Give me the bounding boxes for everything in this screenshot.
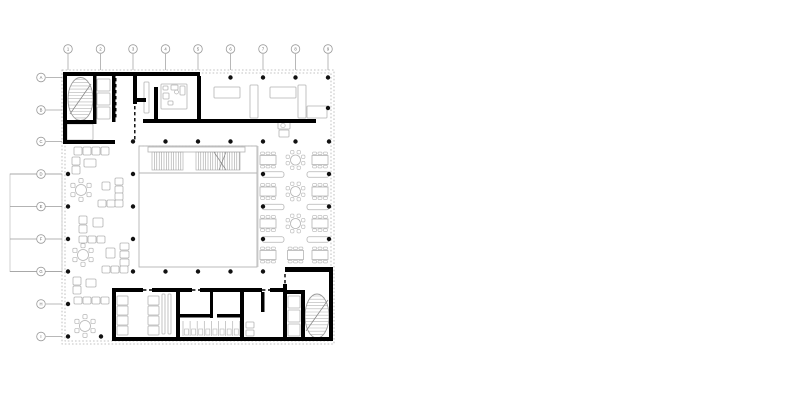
chair: [323, 165, 327, 168]
sofa-seat: [88, 236, 96, 243]
structural-column: [326, 106, 330, 110]
structural-column: [261, 204, 265, 208]
chair: [323, 184, 327, 187]
structural-column: [326, 75, 330, 79]
chair: [323, 247, 327, 250]
dining-table: [312, 187, 328, 196]
fixture-rect: [288, 296, 300, 308]
chair: [297, 214, 300, 217]
chair: [297, 151, 300, 154]
structural-column: [196, 139, 200, 143]
chair: [71, 183, 75, 187]
structural-column: [66, 204, 70, 208]
dining-table: [260, 156, 276, 165]
chair: [323, 197, 327, 200]
fixture-rect: [250, 85, 258, 118]
sofa-seat: [101, 147, 109, 155]
wall-segment: [210, 292, 213, 318]
chair: [271, 165, 275, 168]
sofa-seat: [86, 279, 96, 287]
chair: [261, 216, 265, 219]
fixture-rect: [246, 322, 254, 328]
sofa-seat: [120, 259, 129, 266]
bench-table: [307, 204, 329, 210]
grid-marker-label: I: [40, 334, 41, 339]
wall-segment: [301, 290, 305, 341]
structural-column: [131, 172, 135, 176]
fixture-rect: [270, 87, 296, 98]
wall-segment: [200, 288, 262, 292]
dining-table: [260, 187, 276, 196]
chair: [266, 216, 270, 219]
wall-segment: [240, 292, 244, 337]
chair: [271, 197, 275, 200]
chair: [271, 152, 275, 155]
dining-area: [260, 151, 329, 263]
grid-marker-label: G: [39, 269, 42, 274]
chair: [291, 230, 294, 233]
structural-column: [163, 269, 167, 273]
structural-column: [261, 75, 265, 79]
fixture-rect: [278, 122, 290, 129]
chair: [313, 184, 317, 187]
chair: [297, 230, 300, 233]
chair: [286, 187, 289, 190]
structural-column: [327, 139, 331, 143]
chair: [261, 229, 265, 232]
chair: [87, 183, 91, 187]
chair: [323, 216, 327, 219]
structural-column: [228, 269, 232, 273]
sofa-seat: [73, 286, 81, 294]
stair-direction-line: [70, 84, 91, 114]
grid-marker-label: A: [40, 75, 43, 80]
sofa-seat: [92, 147, 100, 155]
chair: [297, 182, 300, 185]
wall-segment: [143, 119, 316, 123]
structural-column: [261, 172, 265, 176]
chair: [318, 152, 322, 155]
sofa-seat: [106, 248, 115, 258]
chair: [271, 260, 275, 263]
chair: [261, 197, 265, 200]
chair: [266, 197, 270, 200]
wall-segment: [67, 120, 93, 124]
chair: [302, 162, 305, 165]
sofa-seat: [83, 147, 91, 155]
wc-fixture: [185, 329, 189, 335]
chair: [302, 193, 305, 196]
wall-segment: [112, 337, 333, 341]
fixture-rect: [180, 86, 185, 95]
chair: [286, 225, 289, 228]
chair: [291, 182, 294, 185]
bench-table: [262, 172, 284, 178]
chair: [291, 151, 294, 154]
structural-column: [261, 269, 265, 273]
wall-segment: [116, 288, 143, 292]
sofa-seat: [98, 200, 106, 207]
sofa-seat: [74, 147, 82, 155]
wall-segment: [197, 76, 201, 123]
chair: [261, 184, 265, 187]
wall-segment: [112, 76, 116, 122]
sofa-seat: [92, 297, 100, 304]
chair: [323, 229, 327, 232]
fixture-rect: [288, 310, 300, 322]
dining-table: [312, 251, 328, 260]
structural-column: [261, 139, 265, 143]
structural-column: [327, 204, 331, 208]
dining-table: [312, 156, 328, 165]
bench-table: [307, 237, 329, 243]
chair: [266, 165, 270, 168]
structural-column: [131, 269, 135, 273]
fixture-rect: [168, 294, 171, 334]
sofa-seat: [120, 243, 129, 250]
wall-segment: [329, 272, 333, 341]
sofa-seat: [72, 166, 80, 174]
fixture-rect: [298, 85, 306, 118]
chair: [323, 152, 327, 155]
chair: [261, 247, 265, 250]
structural-column: [293, 75, 297, 79]
chair: [318, 229, 322, 232]
fixture-rect: [144, 82, 149, 113]
chair: [294, 247, 298, 250]
wall-segment: [287, 290, 302, 294]
chair: [302, 219, 305, 222]
chair: [313, 260, 317, 263]
chair: [261, 152, 265, 155]
fixture-rect: [307, 106, 327, 118]
sofa-seat: [79, 225, 87, 233]
wc-stalls: [183, 321, 240, 336]
wall-segment: [152, 288, 192, 292]
sofa-seat: [111, 266, 119, 273]
dining-table: [260, 219, 276, 228]
structural-column: [228, 75, 232, 79]
fixture-rect: [117, 296, 128, 305]
grid-marker-label: F: [40, 237, 43, 242]
sofa-seat: [115, 200, 123, 207]
chair: [83, 315, 87, 319]
structural-column: [66, 334, 70, 338]
wall-segment: [63, 72, 200, 76]
chair: [89, 258, 93, 262]
sofa-seat: [79, 216, 87, 224]
sofa-seat: [120, 266, 128, 273]
wc-fixture: [234, 329, 238, 335]
wall-segment: [93, 76, 97, 124]
chair: [318, 197, 322, 200]
round-table: [76, 185, 87, 196]
chair: [318, 184, 322, 187]
chair: [266, 152, 270, 155]
chair: [313, 152, 317, 155]
sofa-seat: [115, 178, 123, 185]
chair: [75, 319, 79, 323]
wall-segment: [63, 72, 67, 144]
structural-column: [293, 139, 297, 143]
wc-fixture: [213, 329, 217, 335]
structural-column: [163, 139, 167, 143]
chair: [83, 333, 87, 337]
grid-marker-label: B: [40, 108, 43, 113]
sofa-seat: [101, 297, 109, 304]
sofa-seat: [97, 236, 105, 243]
fixture-rect: [214, 87, 240, 98]
sofa-seat: [107, 200, 115, 207]
fixture-rect: [148, 326, 159, 335]
floor-plan-page: 123456789ABCDEFGHI: [0, 0, 800, 416]
fixture-rect: [148, 306, 159, 315]
chair: [302, 155, 305, 158]
chair: [75, 329, 79, 333]
wall-segment: [154, 87, 158, 121]
chair: [297, 198, 300, 201]
sofa-seat: [93, 218, 103, 227]
chair: [291, 166, 294, 169]
chair: [318, 216, 322, 219]
chair: [313, 229, 317, 232]
grid-marker-label: D: [39, 172, 42, 177]
terrace-outline: [10, 174, 62, 272]
fixture-rect: [97, 93, 110, 105]
grid-marker-label: H: [39, 302, 42, 307]
sofa-seat: [120, 251, 129, 258]
chair: [291, 214, 294, 217]
chair: [73, 248, 77, 252]
chair: [73, 258, 77, 262]
structural-column: [66, 237, 70, 241]
terrace-rect: [10, 174, 62, 272]
chair: [286, 219, 289, 222]
fixture-rect: [117, 326, 128, 335]
wall-segment: [176, 292, 180, 337]
chair: [79, 197, 83, 201]
chair: [299, 247, 303, 250]
chair: [266, 247, 270, 250]
fixture-rect: [117, 306, 128, 315]
fixture-rect: [117, 316, 128, 325]
fixture-rect: [97, 107, 110, 119]
chair: [91, 319, 95, 323]
chair: [318, 260, 322, 263]
wall-segment: [63, 140, 115, 144]
grid-marker-label: C: [39, 139, 42, 144]
wall-segment: [180, 314, 210, 318]
fixture-rect: [168, 101, 173, 105]
wall-segment: [112, 288, 116, 337]
chair: [294, 260, 298, 263]
bench-table: [262, 237, 284, 243]
wall-segment: [270, 288, 283, 292]
grid-marker-label: E: [40, 204, 43, 209]
sofa-seat: [72, 157, 80, 165]
round-table: [80, 321, 91, 332]
chair: [286, 162, 289, 165]
sofa-seat: [84, 159, 96, 167]
fixture-rect: [246, 330, 254, 336]
fixture-rect: [97, 79, 110, 91]
chair: [79, 179, 83, 183]
wc-fixture: [227, 329, 231, 335]
bench-table: [307, 172, 329, 178]
structural-column: [131, 237, 135, 241]
chair: [266, 229, 270, 232]
chair: [323, 260, 327, 263]
wc-fixture: [199, 329, 203, 335]
atrium: [139, 146, 258, 267]
chair: [318, 165, 322, 168]
fixture-rect: [162, 294, 165, 334]
fixture-rect: [279, 130, 289, 137]
floor-plan-drawing: 123456789ABCDEFGHI: [0, 0, 800, 416]
wall-segment: [261, 292, 265, 312]
sofa-seat: [102, 266, 110, 273]
wall-segment: [133, 98, 146, 102]
chair: [313, 197, 317, 200]
fixture-rect: [163, 93, 169, 99]
chair: [261, 165, 265, 168]
structural-column: [327, 172, 331, 176]
fixture-rect: [67, 124, 93, 140]
dining-table: [312, 219, 328, 228]
fixture-rect: [148, 296, 159, 305]
wc-fixture: [192, 329, 196, 335]
chair: [286, 155, 289, 158]
round-table: [291, 219, 301, 229]
chair: [81, 244, 85, 248]
sofa-seat: [115, 186, 123, 193]
structural-column: [327, 237, 331, 241]
chair: [81, 262, 85, 266]
chair: [313, 165, 317, 168]
chair: [89, 248, 93, 252]
round-table: [78, 250, 89, 261]
round-table: [291, 187, 301, 197]
structural-column: [66, 269, 70, 273]
chair: [299, 260, 303, 263]
chair: [286, 193, 289, 196]
sofa-seat: [73, 277, 81, 285]
chair: [302, 225, 305, 228]
chair: [91, 329, 95, 333]
sofa-seat: [115, 193, 123, 200]
chair: [261, 260, 265, 263]
chair: [291, 198, 294, 201]
chair: [271, 247, 275, 250]
chair: [313, 247, 317, 250]
chair: [302, 187, 305, 190]
structural-column: [131, 204, 135, 208]
dining-table: [288, 251, 304, 260]
chair: [266, 184, 270, 187]
chair: [71, 193, 75, 197]
dining-table: [260, 251, 276, 260]
sofa-seat: [83, 297, 91, 304]
round-table: [291, 155, 301, 165]
chair: [271, 229, 275, 232]
chair: [87, 193, 91, 197]
structural-column: [66, 302, 70, 306]
wall-segment: [217, 314, 240, 318]
wc-fixture: [220, 329, 224, 335]
wc-fixture: [206, 329, 210, 335]
chair: [297, 166, 300, 169]
fixture-rect: [163, 86, 168, 90]
sofa-seat: [79, 236, 87, 243]
chair: [266, 260, 270, 263]
structural-column: [66, 172, 70, 176]
sofa-seat: [74, 297, 82, 304]
structural-column: [99, 334, 103, 338]
sofa-seat: [102, 182, 110, 190]
chair: [271, 216, 275, 219]
fixture-rect: [171, 85, 178, 90]
fixture-rect: [288, 324, 300, 336]
structural-column: [261, 237, 265, 241]
wall-segment: [285, 267, 333, 272]
chair: [288, 247, 292, 250]
chair: [313, 216, 317, 219]
structural-column: [131, 139, 135, 143]
fixture-rect: [148, 316, 159, 325]
structural-column: [196, 269, 200, 273]
structural-column: [228, 139, 232, 143]
chair: [288, 260, 292, 263]
chair: [318, 247, 322, 250]
chair: [271, 184, 275, 187]
bench-table: [262, 204, 284, 210]
